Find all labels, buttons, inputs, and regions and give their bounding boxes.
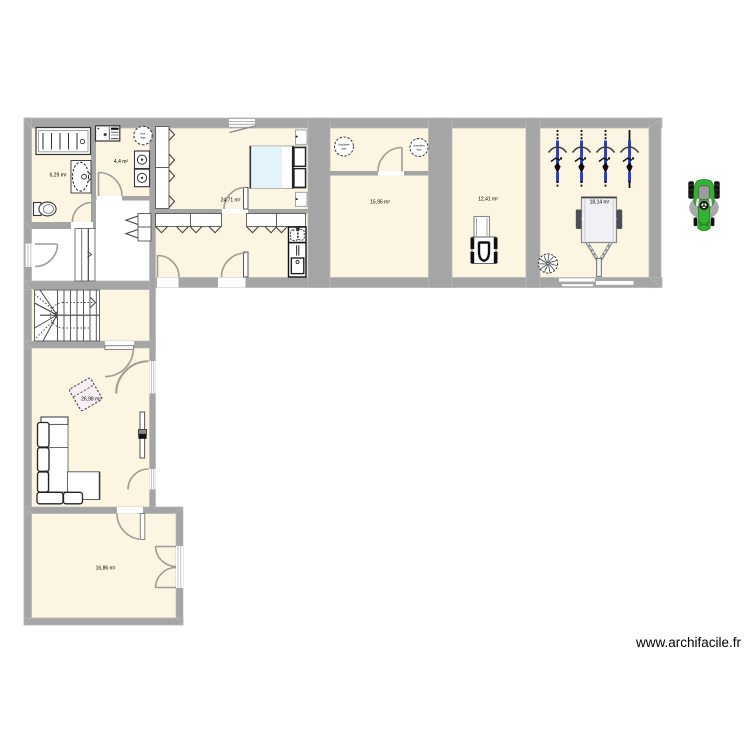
svg-text:bois: bois [342,146,347,150]
svg-text:24,71 m²: 24,71 m² [221,197,241,203]
svg-text:lave: lave [141,132,146,136]
svg-text:linge: linge [140,135,146,139]
svg-text:18,14 m²: 18,14 m² [590,199,610,205]
svg-text:fioul: fioul [417,147,422,151]
svg-text:12,41 m²: 12,41 m² [478,196,498,202]
svg-text:6,29 m²: 6,29 m² [50,172,67,178]
svg-text:chaudière: chaudière [338,143,350,147]
svg-text:www.archifacile.fr: www.archifacile.fr [635,635,742,650]
svg-text:26,98 m²: 26,98 m² [81,396,101,402]
svg-text:4,4 m²: 4,4 m² [114,159,129,165]
svg-text:chaudière: chaudière [413,144,425,148]
svg-text:16,86 m²: 16,86 m² [96,565,116,571]
svg-text:15,95 m²: 15,95 m² [370,199,390,205]
